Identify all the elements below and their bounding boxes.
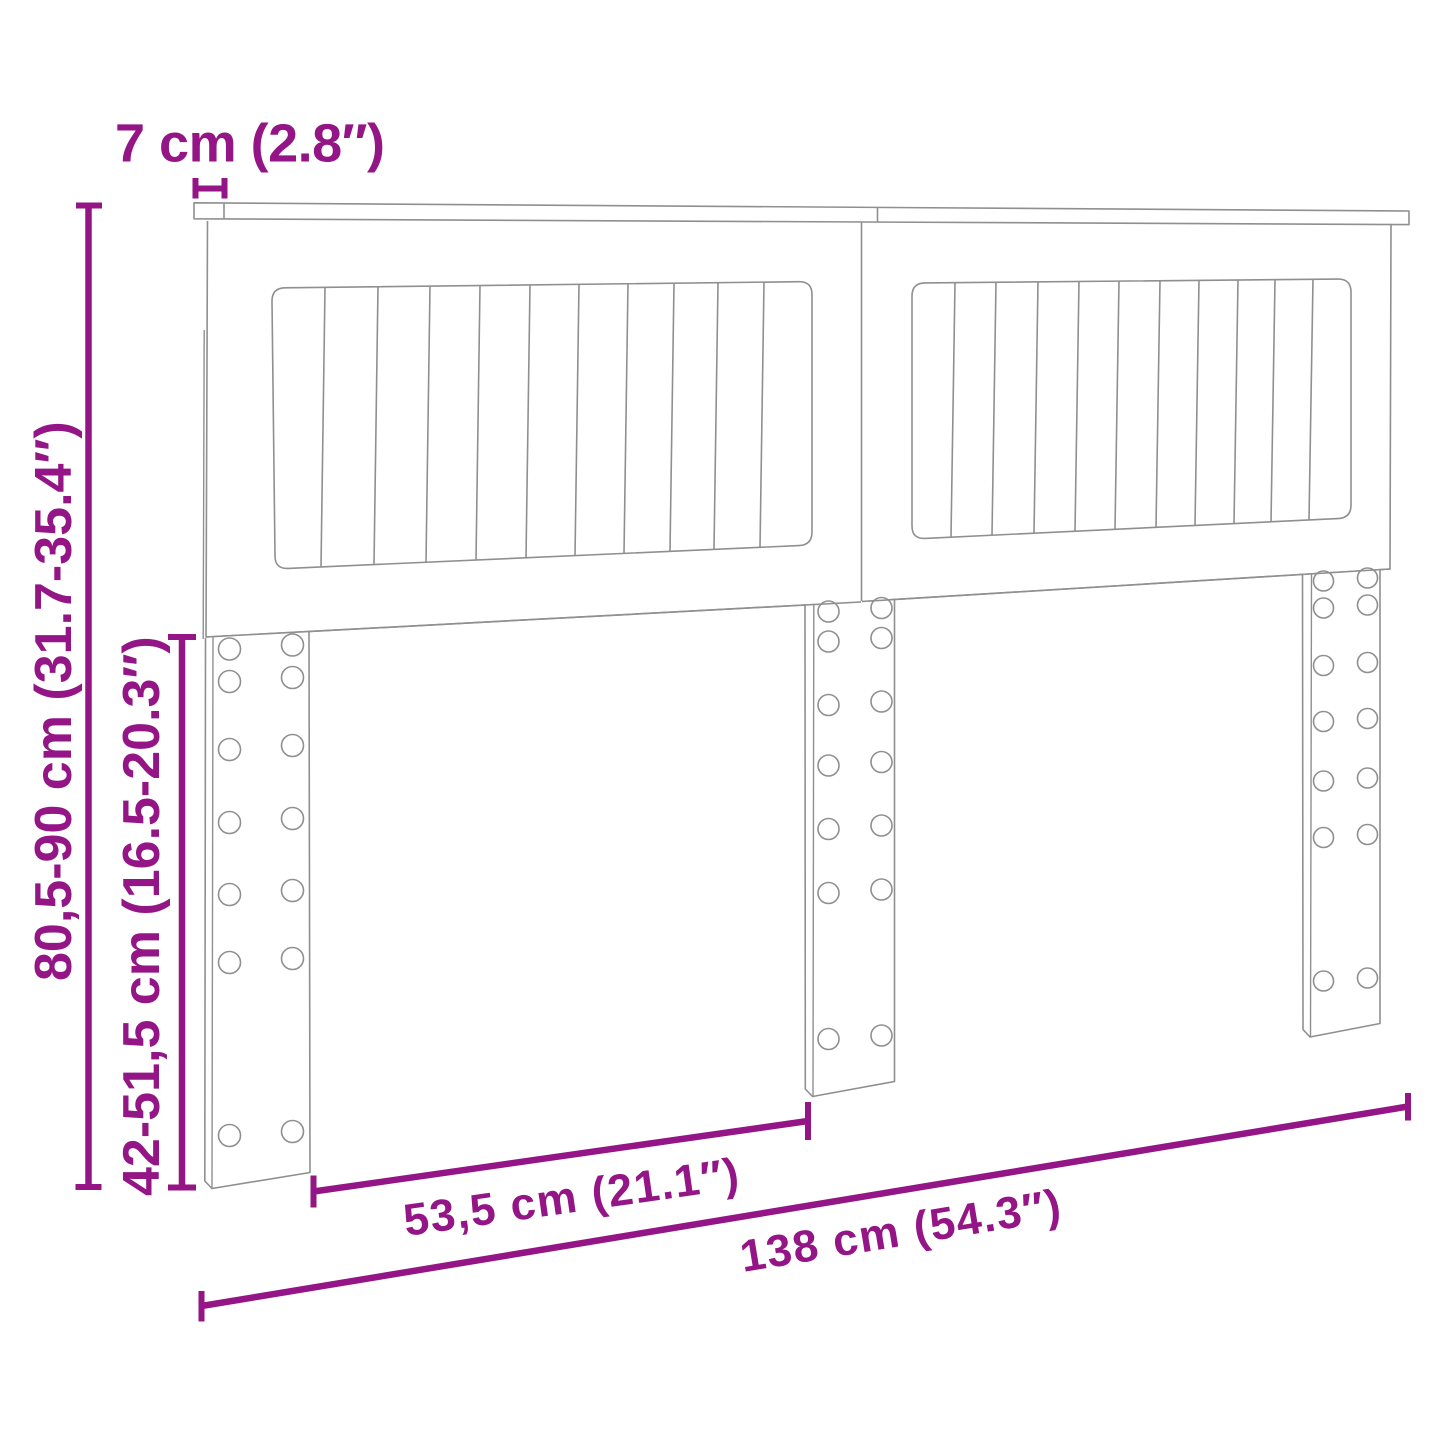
svg-text:7 cm (2.8″): 7 cm (2.8″) <box>115 114 384 174</box>
svg-text:42-51,5 cm (16.5-20.3″): 42-51,5 cm (16.5-20.3″) <box>113 636 171 1196</box>
svg-text:80,5-90 cm (31.7-35.4″): 80,5-90 cm (31.7-35.4″) <box>25 421 83 981</box>
